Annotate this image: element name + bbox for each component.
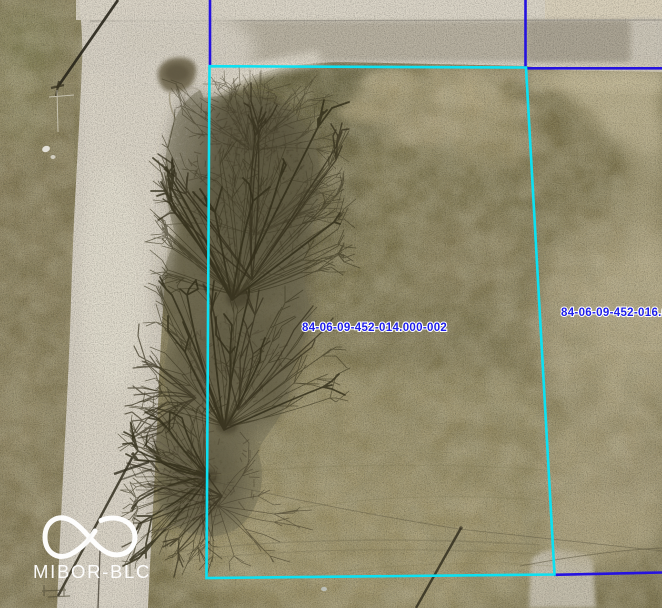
svg-text:84-06-09-452-014.000-002: 84-06-09-452-014.000-002: [302, 322, 447, 334]
svg-text:84-06-09-452-016.000-002: 84-06-09-452-016.000-002: [561, 307, 662, 319]
svg-text:MIBOR-BLC: MIBOR-BLC: [33, 561, 151, 582]
